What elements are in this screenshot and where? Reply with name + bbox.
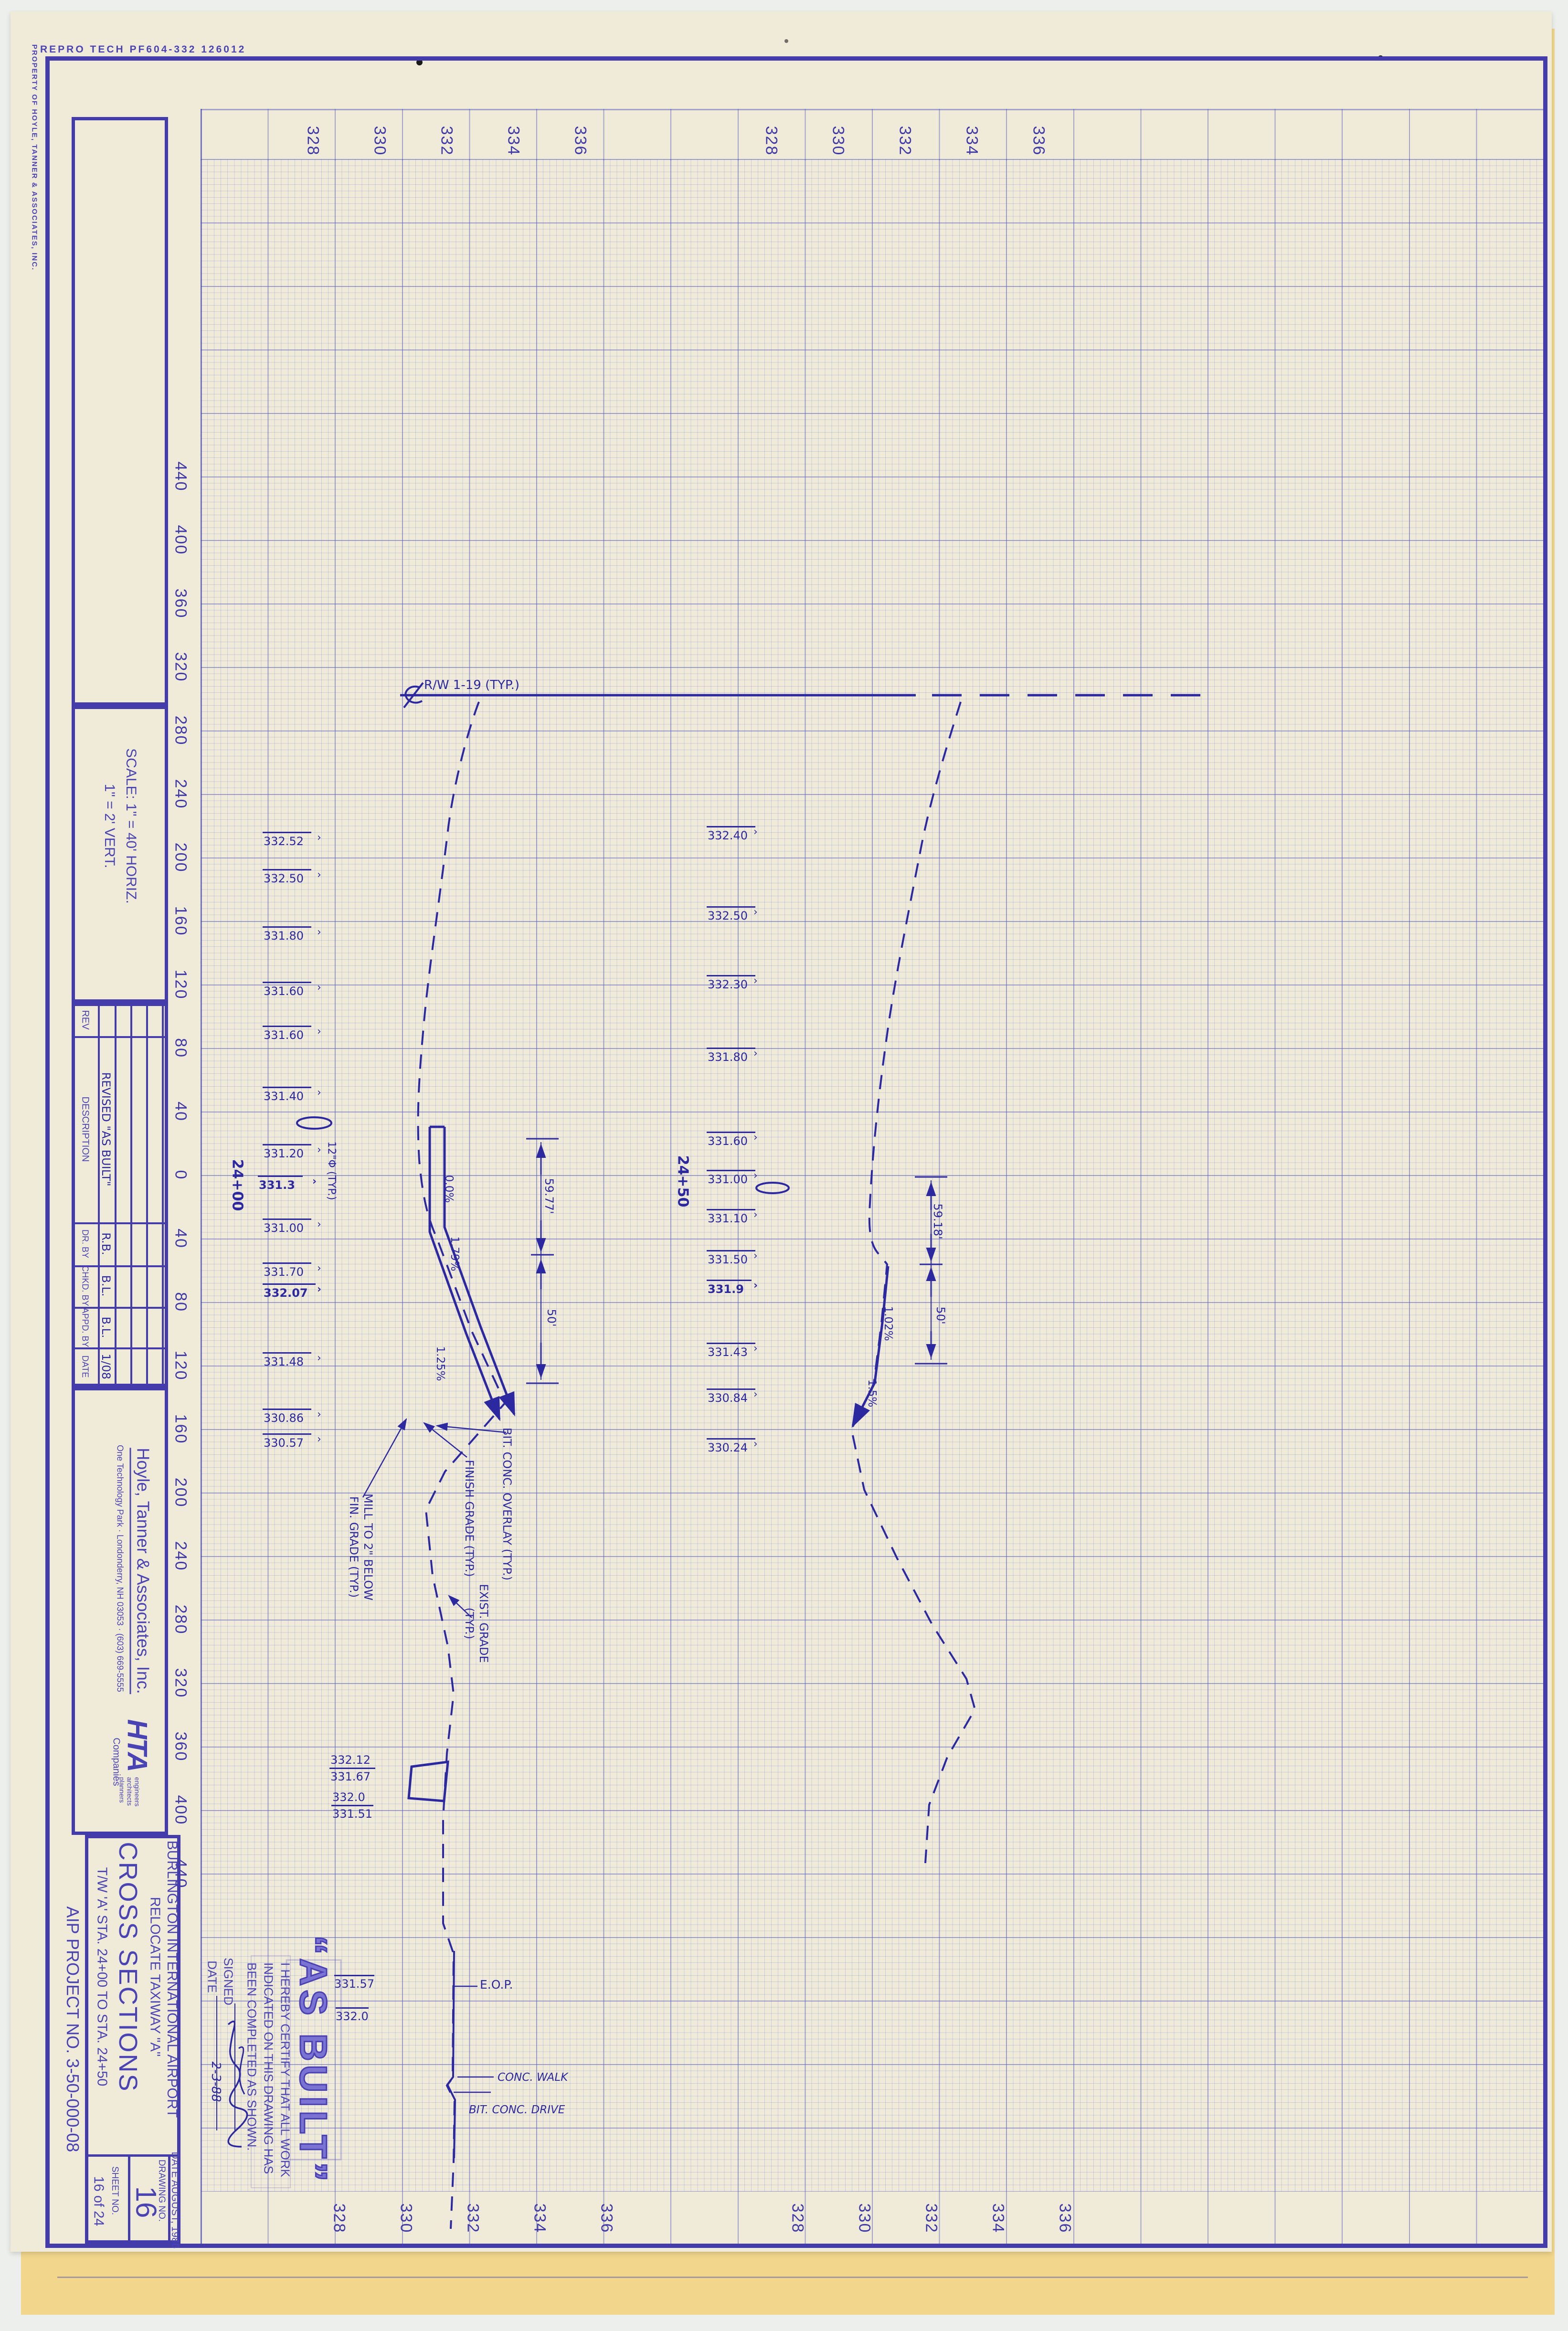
exist-leader <box>449 1596 472 1618</box>
exist-grade-2450-lower <box>853 1435 975 1863</box>
finish-grade-2400 <box>430 1127 499 1419</box>
overlay-leader <box>437 1426 506 1432</box>
signature <box>228 2022 247 2147</box>
mill-leader <box>363 1419 406 1497</box>
overlay-edge-2400 <box>445 1127 514 1414</box>
stamp-outline-box <box>286 1960 341 2160</box>
pipe-ellipse-2450 <box>756 1183 789 1193</box>
exist-grade-2400 <box>418 702 505 2229</box>
swale-outline <box>409 1762 448 1801</box>
walk-leaders <box>454 2077 494 2092</box>
exist-grade-2450-upper <box>853 702 961 1427</box>
signature <box>239 2047 244 2094</box>
cert-outline-box <box>251 1956 290 2188</box>
profile-linework <box>0 0 1568 2331</box>
dim-ticks-2400 <box>526 1139 559 1383</box>
finish-grade-2450 <box>853 1266 888 1426</box>
scanned-drawing-page: { "page": { "repro": "REPRO TECH PF604-3… <box>0 0 1568 2331</box>
eop-edge-line <box>447 1951 455 2158</box>
pipe-ellipse-2400 <box>297 1117 331 1129</box>
